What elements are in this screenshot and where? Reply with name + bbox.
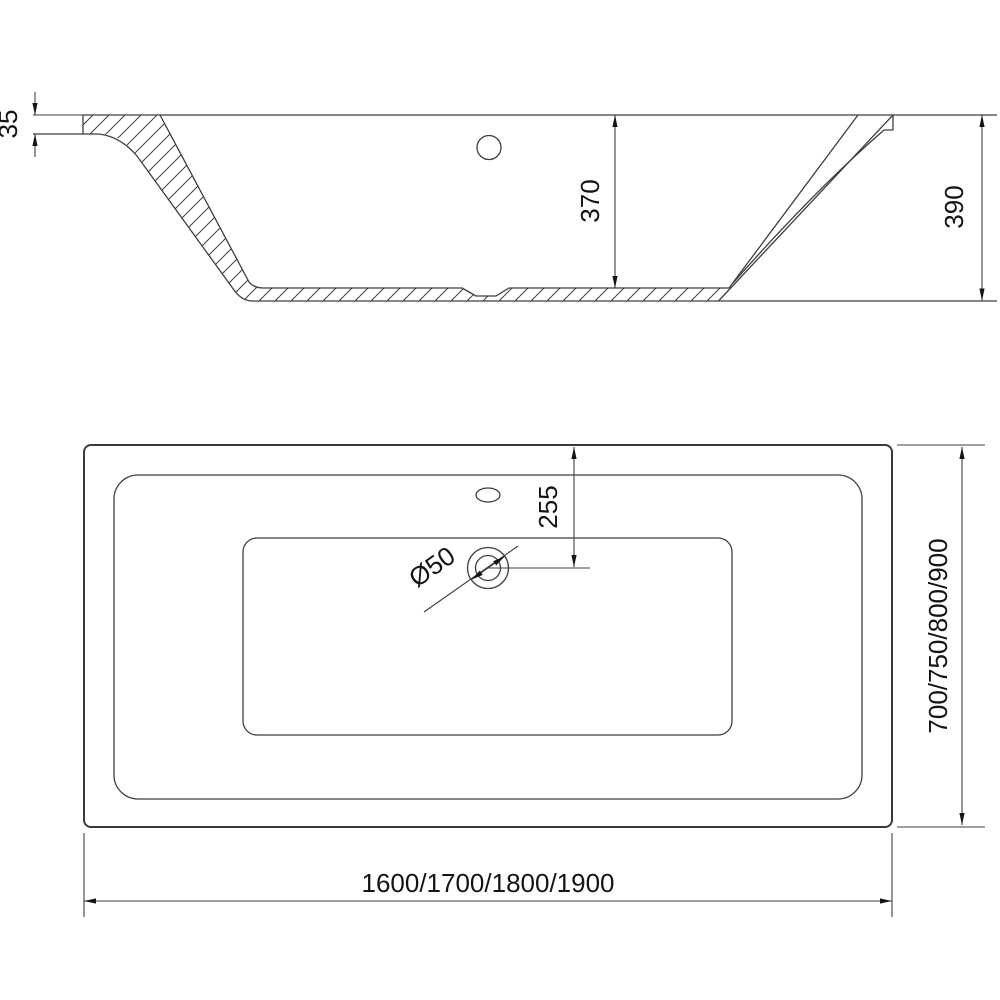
dim-370-label: 370: [575, 179, 605, 222]
dim-inner-depth: 370: [575, 115, 615, 288]
dim-overall-height: 390: [939, 115, 982, 301]
technical-drawing-page: 35 370 390 255 Ø50: [0, 0, 1000, 1000]
right-wall-outer-line: [719, 115, 894, 301]
overflow-hole-side: [477, 136, 501, 160]
plan-view: 255 Ø50 700/750/800/900 1600/1700/1800/1…: [84, 445, 985, 917]
overflow-hole-plan: [476, 488, 500, 502]
tub-rim-inner-edge: [114, 475, 862, 799]
dim-390-label: 390: [939, 185, 969, 228]
right-wall-profile-curve: [733, 130, 884, 283]
side-view: 35 370 390: [0, 92, 997, 301]
wall-section-hatch: [83, 115, 729, 301]
dim-35-label: 35: [0, 110, 23, 139]
dim-drain-diameter: Ø50: [403, 540, 518, 612]
dim-rim-thickness: 35: [0, 92, 83, 157]
bathtub-technical-drawing: 35 370 390 255 Ø50: [0, 0, 1000, 1000]
dim-width-label: 700/750/800/900: [923, 538, 953, 733]
dim-255-label: 255: [533, 485, 563, 528]
dim-length-options: 1600/1700/1800/1900: [84, 833, 892, 917]
dim-drain-offset: 255: [533, 447, 574, 567]
right-wall-inner-line: [729, 115, 858, 288]
dim-50-label: Ø50: [403, 540, 460, 593]
dim-width-options: 700/750/800/900: [897, 445, 985, 827]
dim-length-label: 1600/1700/1800/1900: [361, 868, 614, 898]
